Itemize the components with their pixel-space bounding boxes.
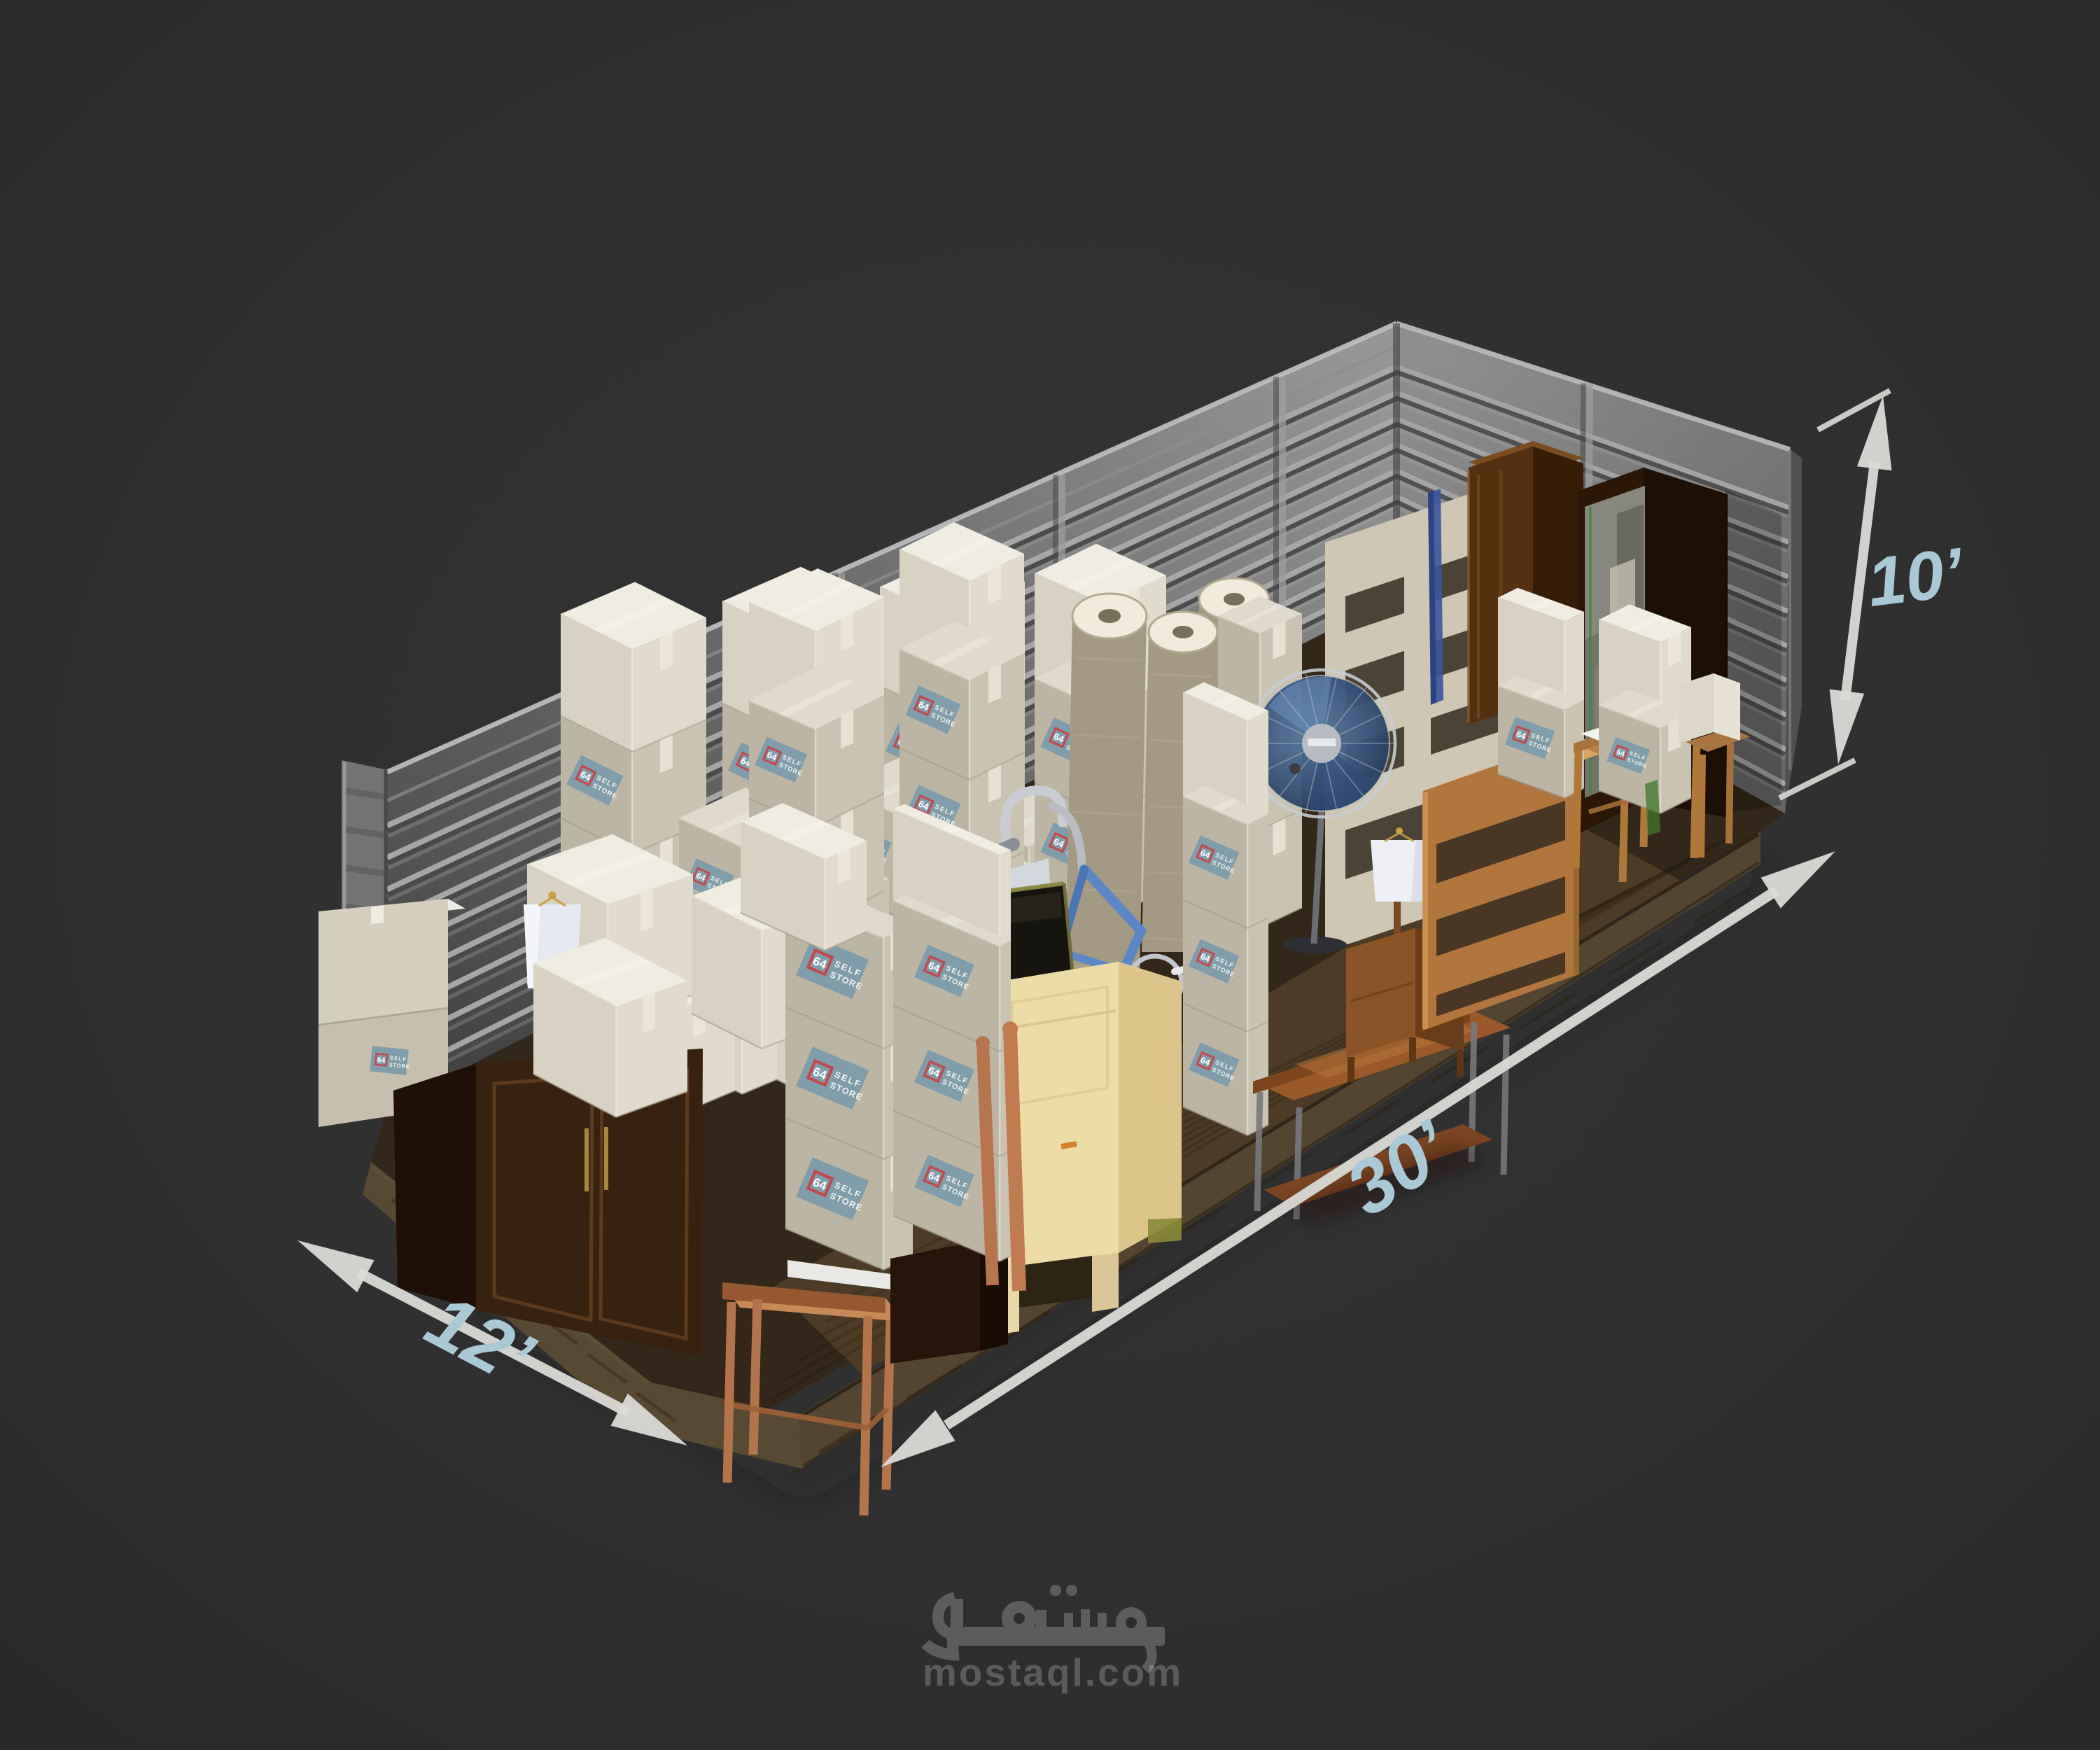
- svg-text:mostaql.com: mostaql.com: [923, 1651, 1183, 1694]
- svg-text:10’: 10’: [1863, 533, 1968, 621]
